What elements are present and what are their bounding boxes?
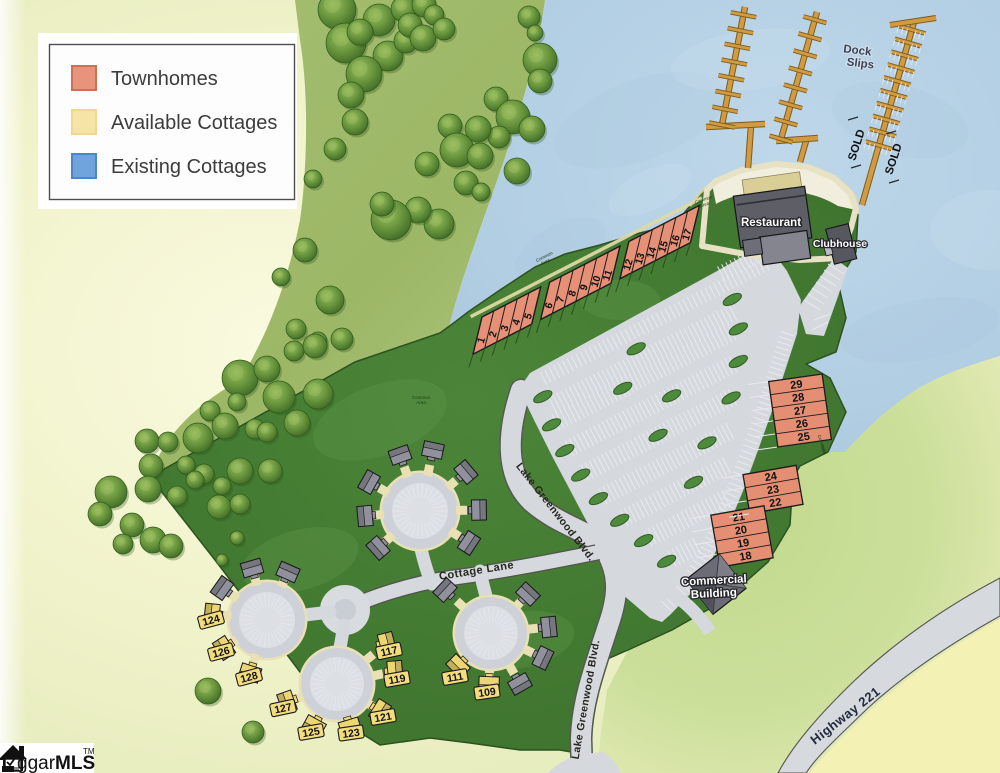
svg-text:19: 19 — [736, 537, 750, 551]
svg-text:Existing Cottages: Existing Cottages — [111, 156, 267, 178]
svg-text:Available Cottages: Available Cottages — [111, 112, 277, 134]
svg-text:18: 18 — [739, 550, 753, 564]
svg-text:Area: Area — [416, 400, 426, 405]
svg-text:22: 22 — [768, 496, 782, 510]
svg-text:123: 123 — [342, 727, 361, 741]
svg-text:TM: TM — [83, 747, 95, 756]
svg-text:21: 21 — [732, 511, 746, 525]
svg-text:28: 28 — [791, 391, 805, 405]
svg-text:ggarMLS: ggarMLS — [17, 753, 95, 773]
svg-text:Restaurant: Restaurant — [741, 217, 801, 229]
svg-text:26: 26 — [795, 418, 809, 432]
svg-text:Townhomes: Townhomes — [111, 68, 218, 90]
svg-text:27: 27 — [793, 404, 807, 418]
svg-text:Clubhouse: Clubhouse — [813, 238, 867, 250]
svg-text:Building: Building — [691, 587, 738, 601]
svg-text:25: 25 — [797, 431, 811, 445]
svg-text:23: 23 — [766, 483, 780, 497]
svg-text:29: 29 — [790, 378, 804, 392]
svg-text:109: 109 — [478, 686, 497, 700]
svg-text:20: 20 — [734, 524, 748, 538]
